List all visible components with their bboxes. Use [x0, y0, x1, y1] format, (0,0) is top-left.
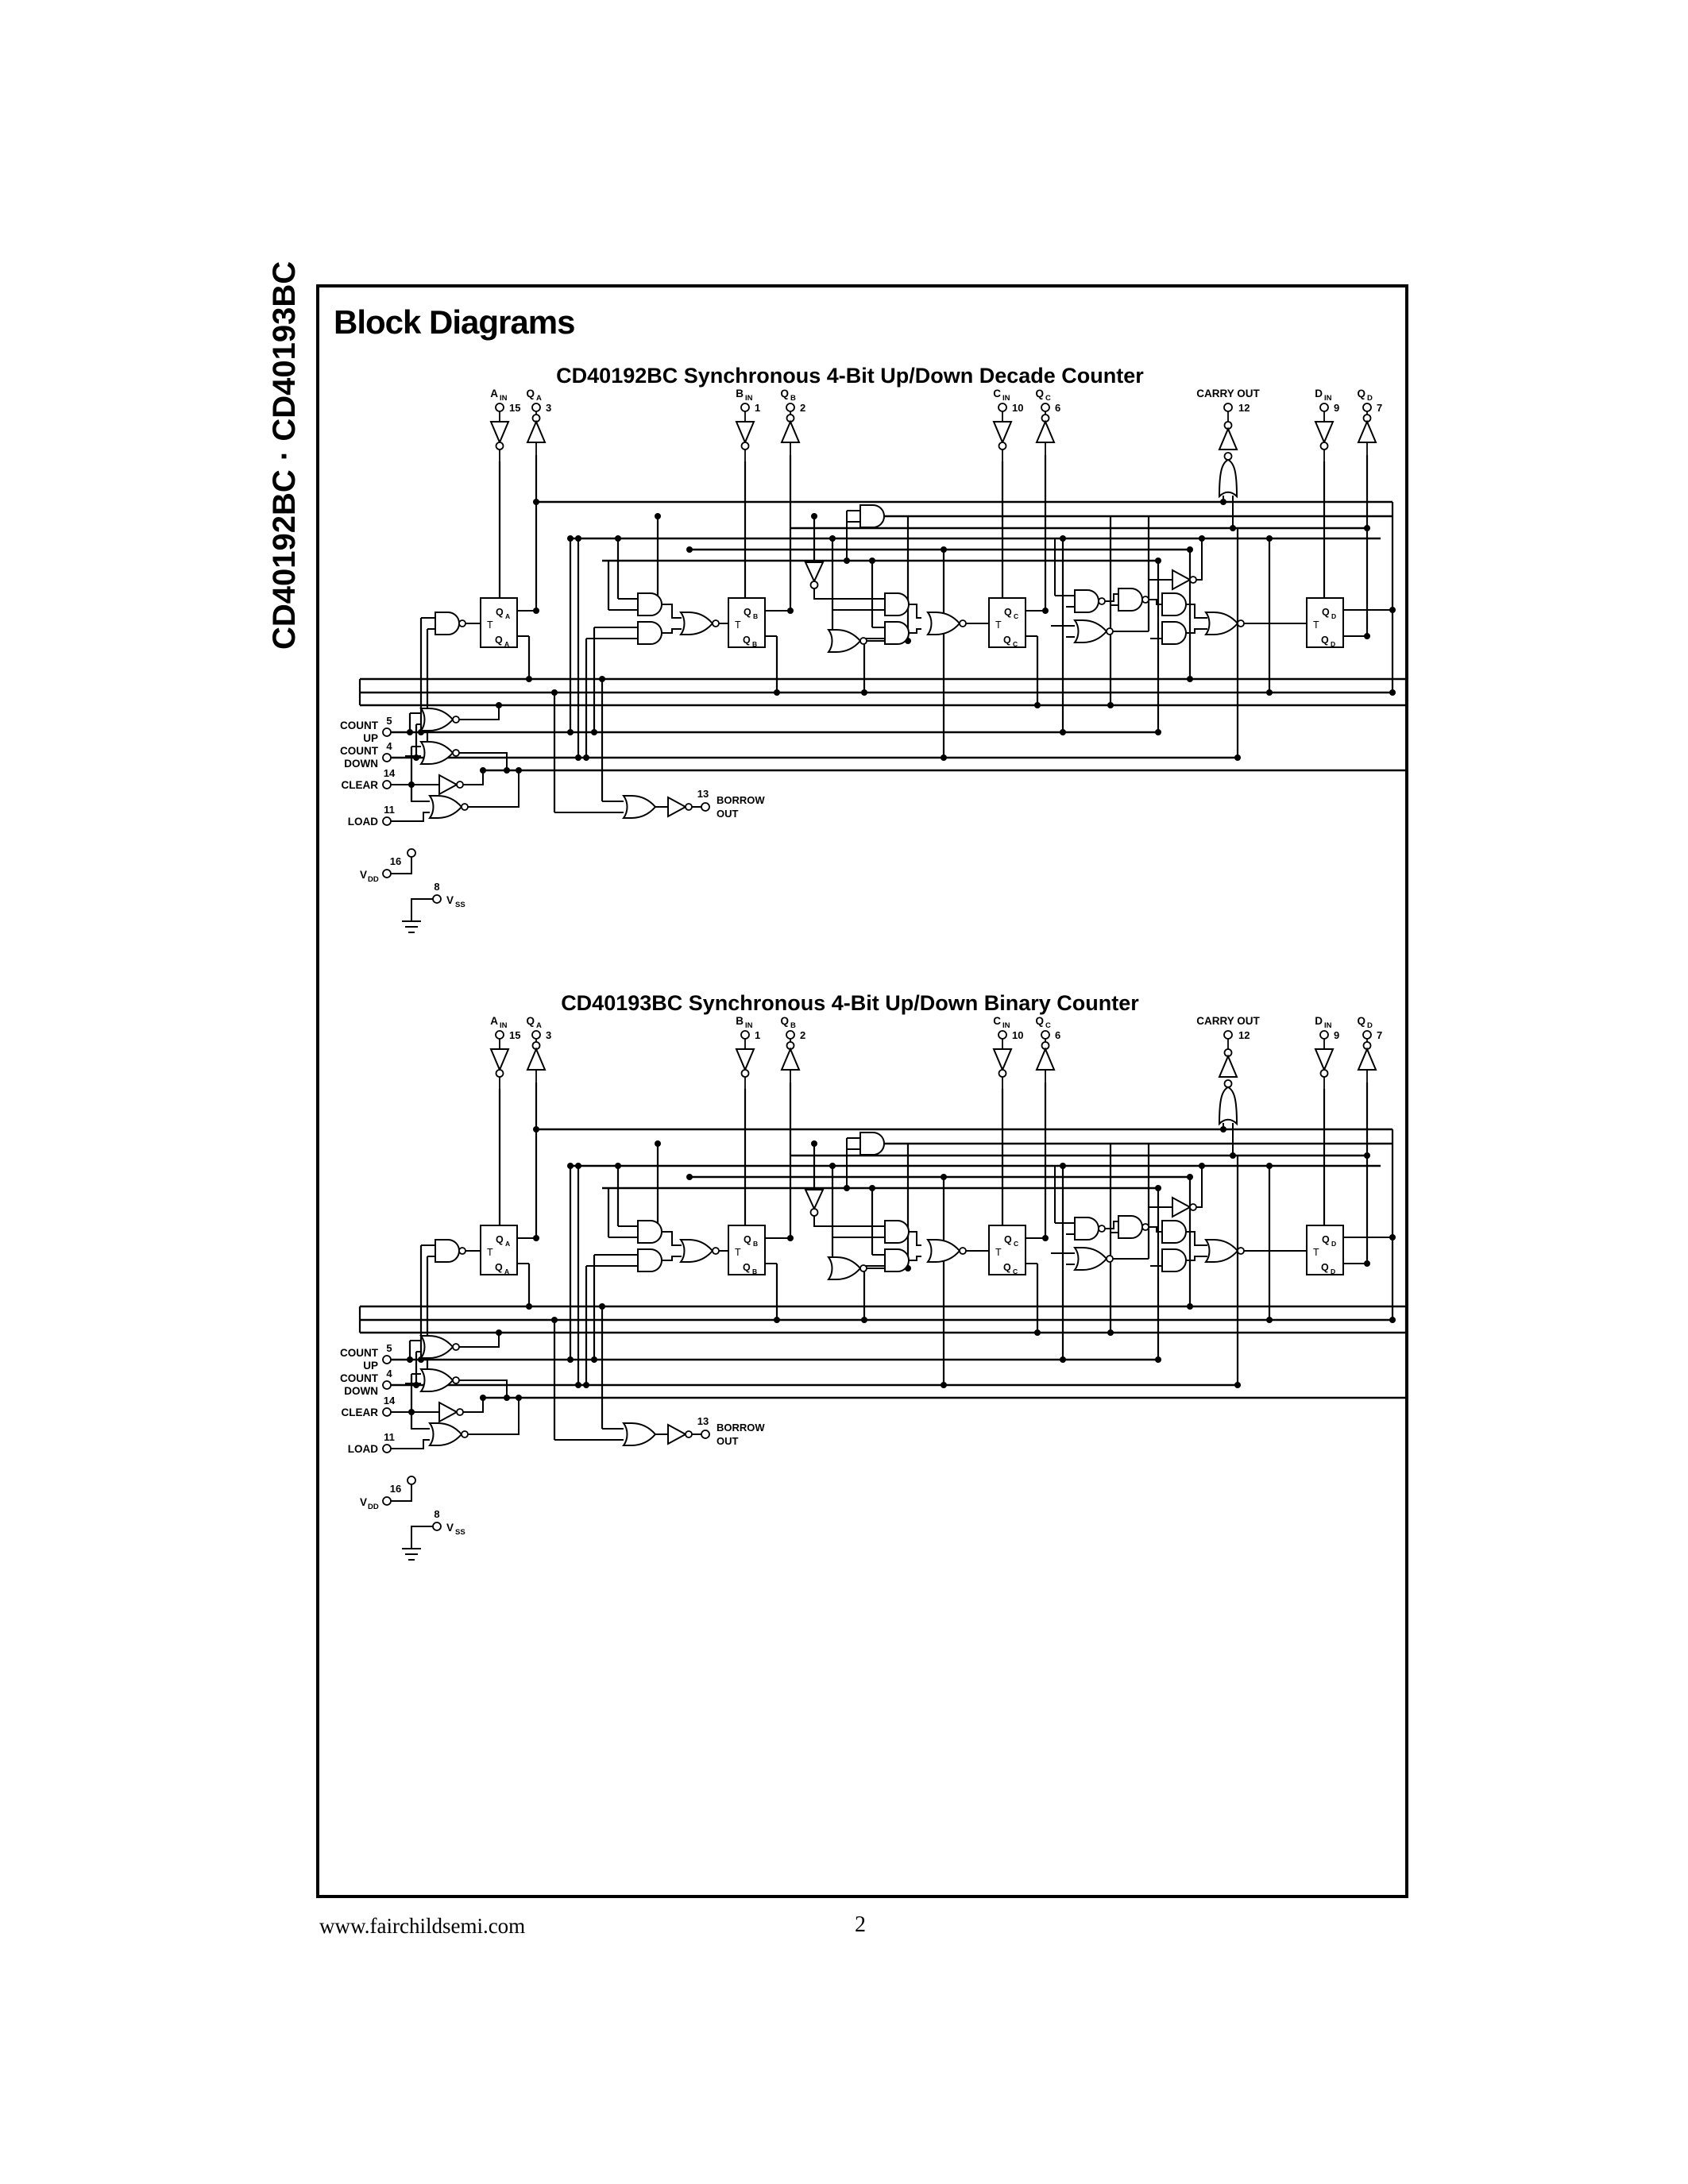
- borrow-label2: OUT: [717, 808, 739, 820]
- pin-number: 15: [509, 402, 520, 414]
- clear-label: CLEAR: [342, 1406, 379, 1418]
- and-gate: [1162, 622, 1186, 644]
- diagram-2-container: CD40193BC Synchronous 4-Bit Up/Down Bina…: [316, 993, 1420, 1569]
- pin-number: 2: [800, 1029, 805, 1041]
- pin-number: 10: [1012, 402, 1023, 414]
- pin-label: D: [1315, 1015, 1323, 1027]
- bin-inverter: [736, 1031, 754, 1089]
- vss-sub: SS: [455, 1528, 465, 1537]
- pin-number: 12: [1238, 1029, 1250, 1041]
- pin-number: 2: [800, 402, 805, 414]
- nor-gate: [421, 1336, 459, 1358]
- and-gate: [638, 1249, 662, 1271]
- load-pin: 11: [384, 804, 395, 816]
- nand-gate: [435, 1240, 465, 1262]
- pin-sub: IN: [500, 394, 508, 403]
- ff-qbar-sub: B: [752, 640, 757, 648]
- and-gate: [1162, 593, 1186, 615]
- and-gate: [885, 1221, 909, 1243]
- pin-number: 3: [546, 402, 551, 414]
- footer-page-number: 2: [855, 1912, 866, 1938]
- nand-gate: [1118, 588, 1149, 611]
- buffer-gate: [1172, 570, 1190, 589]
- top-terminals: [491, 1031, 1376, 1124]
- nor-gate: [421, 1369, 459, 1391]
- circuit-diagram-2: CD40193BC Synchronous 4-Bit Up/Down Bina…: [316, 993, 1420, 1565]
- section-title: Block Diagrams: [334, 303, 574, 341]
- ff-q: Q: [496, 607, 504, 618]
- count-up-label1: COUNT: [340, 1347, 379, 1359]
- qa-buffer: [527, 1031, 545, 1082]
- and-gate: [860, 505, 884, 527]
- pin-number: 3: [546, 1029, 551, 1041]
- count-down-label1: COUNT: [340, 745, 379, 757]
- count-up-label2: UP: [363, 1360, 378, 1372]
- pin-label: Q: [1357, 388, 1365, 399]
- din-inverter: [1315, 1031, 1333, 1089]
- ff-qbar-sub: B: [752, 1268, 757, 1275]
- load-nor-gate: [430, 796, 468, 818]
- buffer-gate: [1172, 1198, 1190, 1217]
- pin-sub: IN: [1324, 1021, 1332, 1030]
- qc-buffer: [1037, 403, 1054, 455]
- pin-sub: D: [1367, 1021, 1373, 1030]
- nor-gate: [829, 1257, 867, 1279]
- pin-label: Q: [526, 1015, 535, 1027]
- and-gate: [638, 593, 662, 615]
- pin-sub: IN: [500, 1021, 508, 1030]
- pin-number: 1: [755, 1029, 760, 1041]
- ff-q-sub: C: [1014, 612, 1018, 620]
- borrow-or-gate: [624, 1423, 655, 1445]
- qa-buffer: [527, 403, 545, 455]
- count-down-terminal: [383, 754, 391, 762]
- count-down-pin: 4: [386, 1368, 392, 1379]
- qc-buffer: [1037, 1031, 1054, 1082]
- and-gate: [885, 622, 909, 644]
- and-gate: [1162, 1249, 1186, 1271]
- nor-gate: [681, 1240, 719, 1262]
- vss-sub: SS: [455, 901, 465, 909]
- ff-qbar-sub: D: [1331, 1268, 1335, 1275]
- pin-number: 12: [1238, 402, 1250, 414]
- pin-label: C: [993, 1015, 1001, 1027]
- nor-gate: [928, 1240, 966, 1262]
- ff-q: Q: [1004, 607, 1012, 618]
- load-pin: 11: [384, 1431, 395, 1443]
- qd-buffer: [1358, 1031, 1376, 1082]
- clear-terminal: [383, 781, 391, 789]
- nor-gate: [1075, 1248, 1113, 1270]
- pin-label: Q: [1035, 388, 1044, 399]
- ff-t: T: [1313, 1247, 1319, 1258]
- pin-label: B: [736, 388, 744, 399]
- borrow-inverter: [668, 1425, 692, 1444]
- clear-inverter: [439, 775, 463, 794]
- ff-qbar: Q: [1321, 1262, 1329, 1273]
- ff-qbar: Q: [1321, 635, 1329, 646]
- borrow-pin: 13: [697, 1415, 709, 1427]
- pin-number: 15: [509, 1029, 520, 1041]
- ff-q-sub: D: [1331, 1240, 1336, 1248]
- clear-terminal: [383, 1408, 391, 1416]
- ff-qbar-sub: C: [1013, 1268, 1018, 1275]
- pin-number: 6: [1055, 402, 1060, 414]
- borrow-label1: BORROW: [717, 794, 765, 806]
- pin-label: C: [993, 388, 1001, 399]
- pin-number: 7: [1377, 1029, 1382, 1041]
- wire-network: [360, 1082, 1406, 1560]
- diagram-1-container: CD40192BC Synchronous 4-Bit Up/Down Deca…: [316, 365, 1420, 941]
- footer-url: www.fairchildsemi.com: [319, 1914, 525, 1939]
- vss-label: V: [446, 1522, 454, 1534]
- carry-out-chain: [1219, 1031, 1237, 1124]
- borrow-label1: BORROW: [717, 1422, 765, 1433]
- pin-label: Q: [526, 388, 535, 399]
- ff-q-sub: B: [753, 1240, 758, 1248]
- ff-q: Q: [1322, 1234, 1330, 1245]
- borrow-inverter: [668, 797, 692, 816]
- vdd-pin: 16: [390, 1483, 401, 1495]
- ain-inverter: [491, 403, 508, 461]
- din-inverter: [1315, 403, 1333, 461]
- count-down-terminal: [383, 1381, 391, 1389]
- count-down-label2: DOWN: [344, 758, 378, 770]
- nor-gate: [1075, 620, 1113, 642]
- ff-qbar-sub: A: [504, 640, 509, 648]
- ff-qbar-sub: A: [504, 1268, 509, 1275]
- count-up-pin: 5: [386, 715, 392, 727]
- ff-t: T: [735, 619, 741, 631]
- and-gate: [885, 1249, 909, 1271]
- clear-inverter: [439, 1403, 463, 1422]
- pin-number: 9: [1334, 402, 1339, 414]
- pin-label: Q: [1035, 1015, 1044, 1027]
- pin-sub: B: [790, 1021, 796, 1030]
- pin-sub: D: [1367, 394, 1373, 403]
- bin-inverter: [736, 403, 754, 461]
- vdd-terminal: [383, 870, 391, 878]
- vdd-pin: 16: [390, 855, 401, 867]
- and-gate: [860, 1133, 884, 1155]
- pin-sub: IN: [1002, 1021, 1010, 1030]
- load-label: LOAD: [348, 816, 378, 828]
- diagram-title: CD40192BC Synchronous 4-Bit Up/Down Deca…: [556, 365, 1144, 388]
- pin-number: 1: [755, 402, 760, 414]
- count-up-label1: COUNT: [340, 720, 379, 731]
- clear-label: CLEAR: [342, 779, 379, 791]
- sidebar-part-number: CD40192BC · CD40193BC: [267, 261, 303, 650]
- ff-q: Q: [1322, 607, 1330, 618]
- carry-out-chain: [1219, 403, 1237, 496]
- ff-t: T: [487, 619, 493, 631]
- diagram-title: CD40193BC Synchronous 4-Bit Up/Down Bina…: [561, 993, 1139, 1015]
- pin-sub: A: [536, 1021, 542, 1030]
- datasheet-page: CD40192BC · CD40193BC Block Diagrams CD4…: [0, 0, 1688, 2184]
- ff-q-sub: B: [753, 612, 758, 620]
- load-nor-gate: [430, 1423, 468, 1445]
- ff-t: T: [995, 1247, 1002, 1258]
- count-down-label1: COUNT: [340, 1372, 379, 1384]
- ff-t: T: [487, 1247, 493, 1258]
- borrow-pin: 13: [697, 788, 709, 800]
- pin-number: 10: [1012, 1029, 1023, 1041]
- vss-label: V: [446, 894, 454, 906]
- nand-gate: [1118, 1216, 1149, 1238]
- clear-pin: 14: [384, 767, 396, 779]
- carry-out-label: CARRY OUT: [1196, 1015, 1260, 1027]
- pin-sub: B: [790, 394, 796, 403]
- ff-qbar: Q: [495, 635, 503, 646]
- ff-qbar: Q: [1003, 1262, 1011, 1273]
- ff-qbar-sub: C: [1013, 640, 1018, 648]
- pin-sub: IN: [1002, 394, 1010, 403]
- ff-qbar-sub: D: [1331, 640, 1335, 648]
- carry-nor-gate: [1219, 460, 1237, 496]
- pin-sub: A: [536, 394, 542, 403]
- borrow-out-terminal: [701, 803, 709, 811]
- pin-number: 7: [1377, 402, 1382, 414]
- nand-gate: [1075, 590, 1105, 612]
- cin-inverter: [994, 1031, 1011, 1089]
- ff-q-sub: A: [505, 1240, 510, 1248]
- pin-label: B: [736, 1015, 744, 1027]
- count-down-label2: DOWN: [344, 1385, 378, 1397]
- count-up-label2: UP: [363, 732, 378, 744]
- count-up-pin: 5: [386, 1342, 392, 1354]
- nand-gate: [435, 612, 465, 635]
- qb-buffer: [782, 403, 799, 455]
- ff-q: Q: [1004, 1234, 1012, 1245]
- ff-qbar: Q: [743, 635, 751, 646]
- and-gate: [638, 622, 662, 644]
- ff-q: Q: [744, 607, 751, 618]
- load-label: LOAD: [348, 1443, 378, 1455]
- load-terminal: [383, 817, 391, 825]
- and-gate: [638, 1221, 662, 1243]
- carry-nor-gate: [1219, 1087, 1237, 1124]
- nor-gate: [421, 742, 459, 764]
- ff-t: T: [1313, 619, 1319, 631]
- borrow-out-terminal: [701, 1430, 709, 1438]
- nand-gate: [1075, 1217, 1105, 1240]
- borrow-or-gate: [624, 796, 655, 818]
- pin-sub: IN: [1324, 394, 1332, 403]
- pin-number: 9: [1334, 1029, 1339, 1041]
- nor-gate: [681, 612, 719, 635]
- ff-qbar: Q: [1003, 635, 1011, 646]
- ff-q-sub: A: [505, 612, 510, 620]
- count-up-terminal: [383, 728, 391, 736]
- clear-pin: 14: [384, 1395, 396, 1406]
- pin-number: 6: [1055, 1029, 1060, 1041]
- pin-label: A: [490, 388, 498, 399]
- cin-inverter: [994, 403, 1011, 461]
- ff-t: T: [995, 619, 1002, 631]
- inverter-down: [805, 1190, 823, 1209]
- ff-qbar: Q: [495, 1262, 503, 1273]
- pin-label: D: [1315, 388, 1323, 399]
- pin-label: A: [490, 1015, 498, 1027]
- qd-buffer: [1358, 403, 1376, 455]
- vss-pin: 8: [434, 1508, 439, 1520]
- vdd-label: V: [360, 1496, 367, 1508]
- count-down-pin: 4: [386, 740, 392, 752]
- vdd-node: [408, 1476, 415, 1484]
- vss-pin: 8: [434, 881, 439, 893]
- qb-buffer: [782, 1031, 799, 1082]
- vss-terminal: [433, 895, 441, 903]
- vdd-sub: DD: [368, 1503, 379, 1511]
- pin-sub: IN: [745, 1021, 753, 1030]
- pin-sub: IN: [745, 394, 753, 403]
- ff-q-sub: C: [1014, 1240, 1018, 1248]
- ain-inverter: [491, 1031, 508, 1089]
- wire-network: [360, 455, 1406, 932]
- nor-gate: [829, 630, 867, 652]
- ff-q-sub: D: [1331, 612, 1336, 620]
- vdd-sub: DD: [368, 875, 379, 884]
- pin-sub: C: [1045, 394, 1051, 403]
- nor-gate: [421, 708, 459, 731]
- pin-sub: C: [1045, 1021, 1051, 1030]
- and-gate: [885, 593, 909, 615]
- vdd-terminal: [383, 1497, 391, 1505]
- top-terminals: [491, 403, 1376, 496]
- ff-t: T: [735, 1247, 741, 1258]
- load-terminal: [383, 1445, 391, 1453]
- and-gate: [1162, 1221, 1186, 1243]
- pin-label: Q: [1357, 1015, 1365, 1027]
- ff-qbar: Q: [743, 1262, 751, 1273]
- circuit-diagram-1: CD40192BC Synchronous 4-Bit Up/Down Deca…: [316, 365, 1420, 937]
- borrow-label2: OUT: [717, 1435, 739, 1447]
- vdd-label: V: [360, 869, 367, 881]
- ff-q: Q: [496, 1234, 504, 1245]
- carry-out-label: CARRY OUT: [1196, 388, 1260, 399]
- vdd-node: [408, 849, 415, 857]
- inverter-down: [805, 562, 823, 581]
- vss-terminal: [433, 1522, 441, 1530]
- count-up-terminal: [383, 1356, 391, 1364]
- nor-gate: [928, 612, 966, 635]
- pin-label: Q: [780, 1015, 789, 1027]
- ff-q: Q: [744, 1234, 751, 1245]
- pin-label: Q: [780, 388, 789, 399]
